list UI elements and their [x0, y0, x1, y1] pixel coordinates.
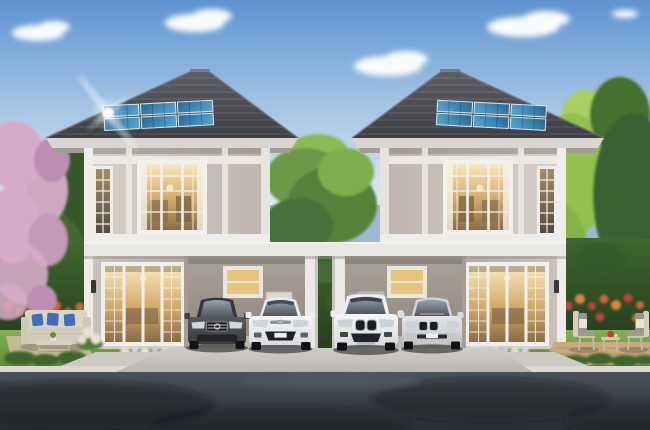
headlight: [292, 320, 309, 328]
fog-light: [301, 333, 309, 338]
side-mirror: [399, 312, 405, 318]
wheel: [404, 342, 413, 350]
wheel: [451, 342, 460, 350]
wheel: [301, 342, 311, 350]
side-mirror: [246, 312, 252, 318]
chair-pillow: [636, 319, 644, 328]
skid-plate: [357, 342, 375, 345]
table-top: [601, 337, 620, 340]
cloud: [612, 10, 638, 18]
blue-pillow: [47, 313, 59, 326]
side-mirror: [331, 311, 337, 318]
wheel: [385, 343, 395, 351]
carport-beam: [84, 242, 566, 256]
fog-light: [254, 333, 262, 338]
table-shelf: [38, 349, 70, 351]
kidney-grille: [367, 320, 377, 331]
kidney-grille: [356, 320, 366, 331]
cup: [615, 334, 618, 337]
headlight: [338, 319, 354, 328]
side-mirror: [310, 312, 316, 318]
headlight: [252, 320, 269, 328]
bumper-intake: [351, 334, 381, 343]
tree: [318, 148, 374, 196]
chair-seat: [627, 331, 644, 336]
bumper-intake: [197, 335, 237, 342]
fog-light: [340, 332, 348, 337]
wheel: [337, 343, 347, 351]
chair-shadow: [619, 347, 649, 353]
hood-emblem: [277, 320, 283, 324]
headlight: [447, 321, 460, 329]
architectural-rendering: [0, 0, 650, 430]
blue-pillow: [64, 314, 76, 327]
table-top: [36, 341, 72, 345]
side-mirror: [458, 312, 464, 318]
headlight: [229, 322, 243, 329]
carport-beam-highlight: [84, 242, 566, 244]
chair-seat-frame: [578, 336, 595, 338]
scene-canvas: [0, 0, 650, 430]
chair-pillow: [579, 319, 587, 328]
wheel: [252, 342, 262, 350]
windshield: [200, 300, 234, 318]
blue-pillows: [31, 313, 75, 327]
license-plate: [426, 334, 438, 339]
grille: [207, 322, 228, 331]
headlight: [405, 321, 418, 329]
driveway-apron: [116, 348, 532, 372]
blue-pillow: [31, 313, 43, 326]
red-teapot: [607, 331, 613, 337]
kidney-grille: [430, 322, 439, 331]
headlight: [379, 319, 395, 328]
wheel: [236, 341, 245, 349]
table-shelf: [603, 345, 618, 347]
wheel: [190, 341, 199, 349]
carport-beam-shadow: [84, 256, 566, 259]
fog-light: [384, 332, 392, 337]
kidney-grille: [419, 322, 428, 331]
chair-seat-frame: [627, 336, 644, 338]
chair-seat: [578, 331, 595, 336]
table-plant: [50, 332, 56, 338]
license-plate: [275, 333, 287, 338]
headlight: [192, 322, 206, 329]
side-mirror: [185, 313, 191, 319]
